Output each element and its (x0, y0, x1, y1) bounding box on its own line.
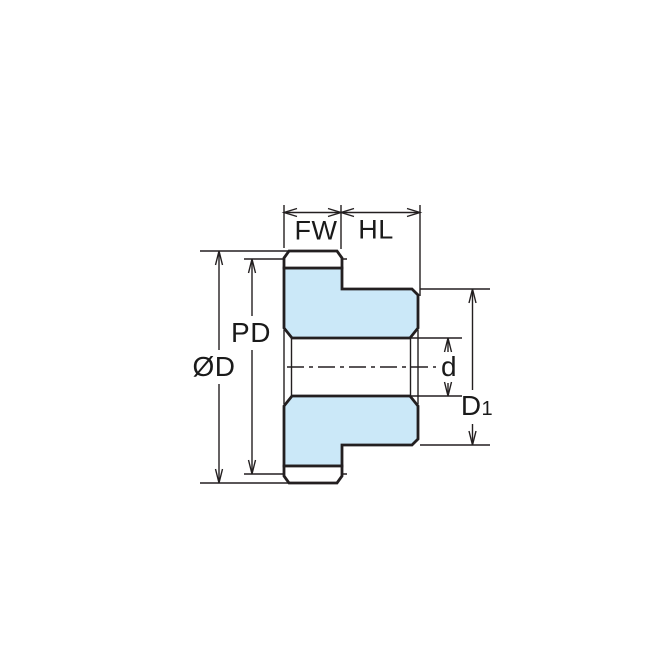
hub-diameter-label: D1 (461, 392, 493, 420)
gear-body-upper-section (284, 268, 418, 338)
gear-diagram-svg (0, 0, 670, 670)
hub-length-label: HL (358, 217, 394, 244)
gear-body-lower-section (284, 396, 418, 466)
gear-tooth-top (284, 251, 342, 268)
face-width-label: FW (295, 218, 338, 245)
gear-dimension-diagram: FW HL PD ØD d D1 (0, 0, 670, 670)
outside-diameter-label: ØD (193, 353, 236, 381)
hub-diameter-label-subscript: 1 (482, 398, 494, 420)
gear-tooth-bottom (284, 466, 342, 483)
hub-diameter-label-main: D (461, 390, 482, 421)
bore-diameter-label: d (441, 353, 457, 381)
pitch-diameter-label: PD (231, 319, 271, 347)
